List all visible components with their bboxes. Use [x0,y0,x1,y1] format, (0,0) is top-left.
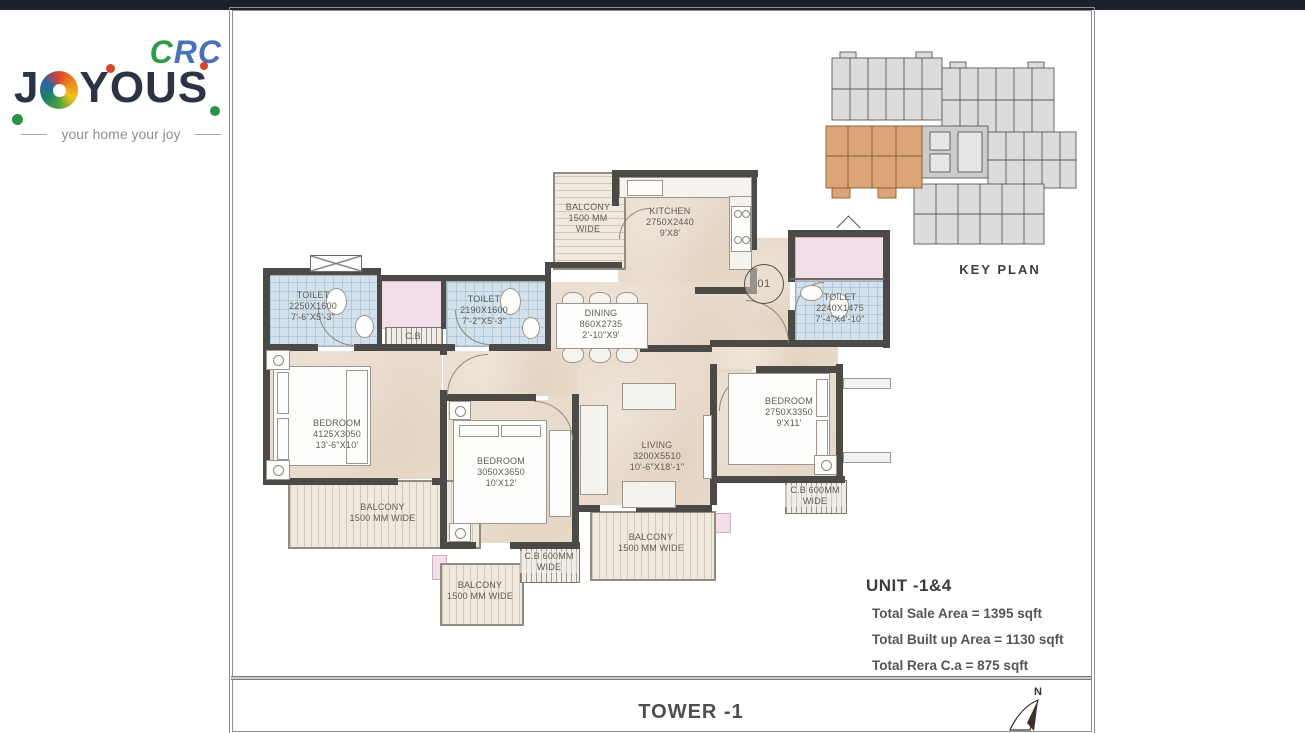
wall-segment [612,170,619,206]
tv-console [703,415,712,479]
room-label-toilet-left: TOILET2250X16007'-6"X5'-3" [272,290,354,322]
room-label-bedroom-mid: BEDROOM3050X365010'X12' [458,456,544,488]
wall-segment [756,366,840,373]
north-compass: N [1006,686,1058,733]
nightstand [266,460,290,480]
key-plan-highlight-unit [826,126,922,198]
kitchen-sink [627,180,663,196]
bed-pillow [277,372,289,414]
wall-segment [572,394,579,549]
room-label-bedroom-right: BEDROOM2750X33509'X11' [746,396,832,428]
living-loveseat-bottom [622,481,676,508]
logo-red-dot [106,64,115,73]
north-label: N [1034,686,1042,698]
wall-segment [578,505,600,512]
living-sofa-left [580,405,608,495]
room-label-bedroom-left: BEDROOM4125X305013'-6"X10' [292,418,382,450]
room-label-toilet-mid: TOILET2190X16007'-2"X5'-3" [448,294,520,326]
joyous-swirl-o-icon [40,71,78,109]
washbasin-toilet-mid [522,317,540,339]
logo-green-dot-2 [210,106,220,116]
room-label-dining: DINING860X27352'-10"X9' [558,308,644,340]
wall-segment [548,262,622,268]
wall-segment [443,394,536,401]
logo-tagline: your home your joy [14,126,228,142]
unit-info-block: UNIT -1&4 Total Sale Area = 1395 sqft To… [866,576,1064,684]
room-label-balcony-left: BALCONY1500 MM WIDE [300,502,465,524]
label-cupboard-right: C.B 600MMWIDE [785,485,845,507]
wall-segment [545,262,551,351]
wall-segment [377,275,382,345]
wall-segment [263,268,270,485]
bed-pillow [277,418,289,460]
stove-burner [734,236,742,244]
bed-pillow [459,425,499,437]
wall-segment [440,348,447,355]
label-cupboard-foyer: C.B [390,331,436,342]
wall-thin-divider [790,278,884,280]
stove-burner [742,236,750,244]
wall-segment [441,275,446,329]
shaft-x-box [310,255,362,272]
label-cupboard-bottom: C.B 600MMWIDE [520,551,578,573]
unit-sale-area: Total Sale Area = 1395 sqft [872,606,1064,621]
window-ledge [843,452,891,463]
north-arrow-icon [1006,698,1046,733]
room-label-kitchen: KITCHEN2750X24409'X8' [630,206,710,238]
unit-title: UNIT -1&4 [866,576,1064,596]
room-label-balcony-top: BALCONY1500 MMWIDE [556,202,620,234]
nightstand [266,350,290,370]
key-plan-label: KEY PLAN [930,262,1070,277]
unit-rera-area: Total Rera C.a = 875 sqft [872,658,1064,673]
entrance-door-number: 01 [744,264,784,304]
logo-green-dot [12,114,23,125]
stove-burner [734,210,742,218]
nightstand [814,455,837,475]
key-plan-diagram [818,48,1083,253]
wall-segment [440,390,447,549]
joyous-letters-rest: YOUS [79,66,208,110]
tower-label: TOWER -1 [596,701,786,724]
wall-segment [377,275,548,281]
wall-segment [712,476,845,483]
room-label-living: LIVING3200X551010'-6"X18'-1" [612,440,702,472]
wall-segment [443,542,476,549]
room-label-balcony-bottom: BALCONY1500 MM WIDE [442,580,518,602]
window-ledge [843,378,891,389]
room-label-balcony-mid: BALCONY1500 MM WIDE [606,532,696,554]
wall-segment [510,542,580,549]
floor-plan-page: CRC J YOUS your home your joy [0,0,1305,733]
logo-red-dot-2 [200,62,208,70]
room-label-toilet-right: TOILET2240X14757'-4"X4'-10" [798,292,882,324]
washbasin-toilet-left [355,315,374,338]
foyer-shaft-pink [381,281,443,329]
joyous-letter-j: J [14,66,39,110]
brand-logo: CRC J YOUS your home your joy [14,30,228,146]
wall-segment [788,230,795,282]
nightstand [449,523,471,542]
pink-jamb-3 [714,513,731,533]
wall-segment [640,345,712,352]
wall-segment [489,344,551,351]
wall-segment [612,170,758,177]
wall-segment [836,364,843,483]
living-loveseat-top [622,383,676,410]
wardrobe-mid [549,430,571,517]
nightstand [449,401,471,420]
wall-segment [710,340,890,347]
unit-builtup-area: Total Built up Area = 1130 sqft [872,632,1064,647]
stove-burner [742,210,750,218]
wall-segment [788,310,795,347]
bed-pillow [501,425,541,437]
